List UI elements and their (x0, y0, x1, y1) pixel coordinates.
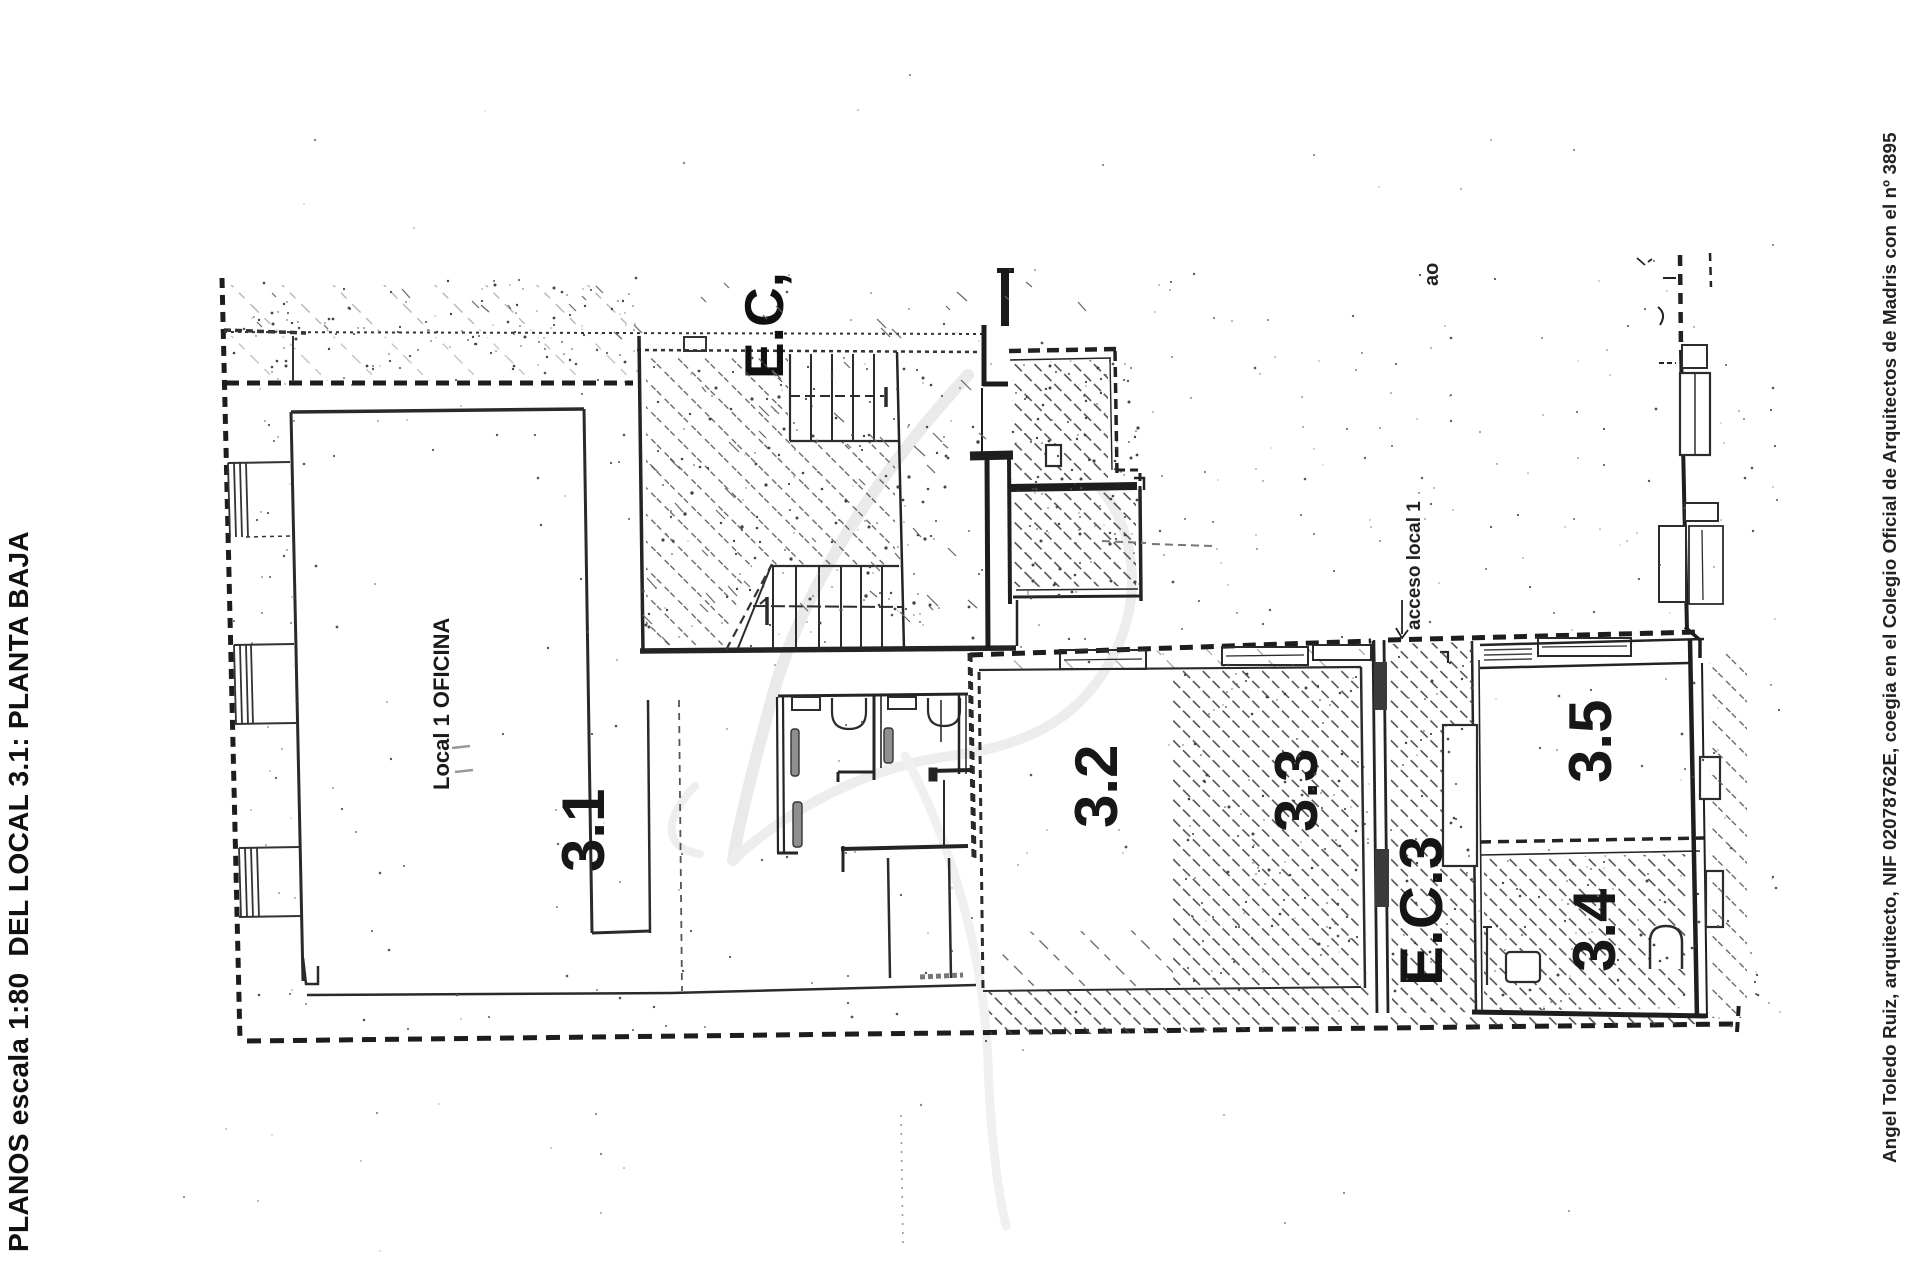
svg-text:Local 1 OFICINA: Local 1 OFICINA (429, 618, 454, 790)
svg-text:3.2: 3.2 (1063, 745, 1130, 828)
svg-text:3.5: 3.5 (1557, 700, 1624, 783)
svg-text:PLANOS escala 1:80 DEL LOCAL: PLANOS escala 1:80 DEL LOCAL 3.1: PLANTA… (2, 531, 34, 1252)
svg-text:3.3: 3.3 (1263, 749, 1330, 832)
svg-text:ao: ao (1421, 263, 1443, 286)
svg-text:acceso local 1: acceso local 1 (1404, 501, 1425, 630)
svg-text:Angel Toledo Ruiz, arquitecto,: Angel Toledo Ruiz, arquitecto, NIF 02078… (1879, 132, 1900, 1163)
svg-text:3.1: 3.1 (550, 789, 617, 872)
svg-text:E.C.3: E.C.3 (1388, 836, 1455, 986)
